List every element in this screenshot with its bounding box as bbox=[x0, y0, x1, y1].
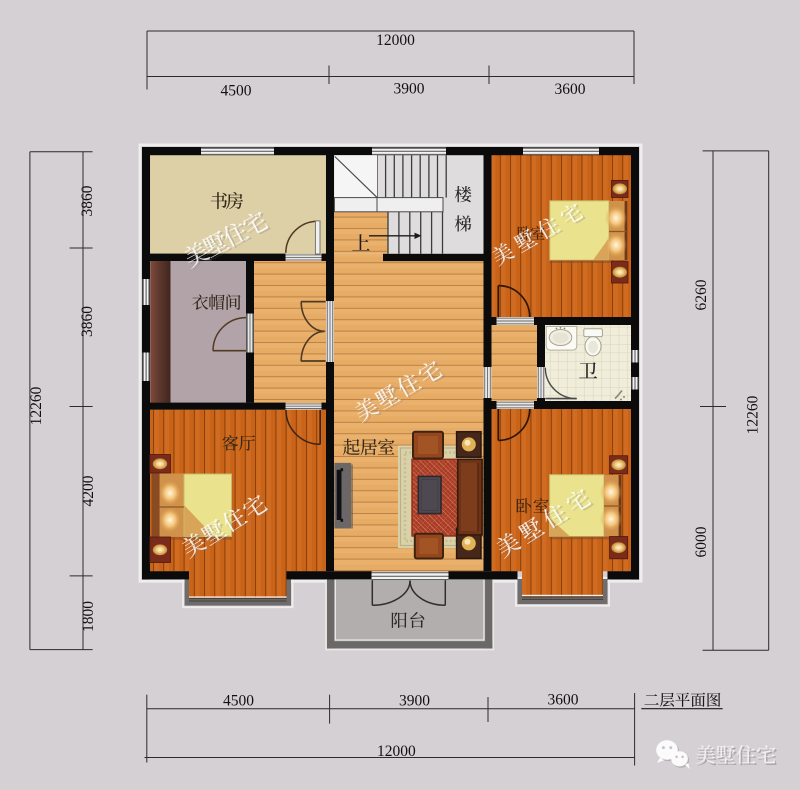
svg-text:12000: 12000 bbox=[376, 32, 415, 49]
svg-text:1800: 1800 bbox=[80, 601, 97, 632]
svg-text:3900: 3900 bbox=[394, 81, 425, 98]
svg-text:12260: 12260 bbox=[28, 386, 45, 425]
svg-text:6260: 6260 bbox=[693, 279, 710, 310]
svg-text:4500: 4500 bbox=[221, 83, 252, 100]
svg-text:6000: 6000 bbox=[693, 526, 710, 557]
svg-text:12260: 12260 bbox=[745, 395, 762, 434]
svg-text:4500: 4500 bbox=[223, 693, 254, 710]
svg-text:3860: 3860 bbox=[79, 185, 96, 216]
svg-text:12000: 12000 bbox=[377, 743, 416, 760]
svg-text:3860: 3860 bbox=[79, 306, 96, 337]
svg-text:3900: 3900 bbox=[399, 693, 430, 710]
svg-text:4200: 4200 bbox=[80, 475, 97, 506]
svg-text:3600: 3600 bbox=[548, 691, 579, 708]
svg-text:3600: 3600 bbox=[555, 81, 586, 98]
